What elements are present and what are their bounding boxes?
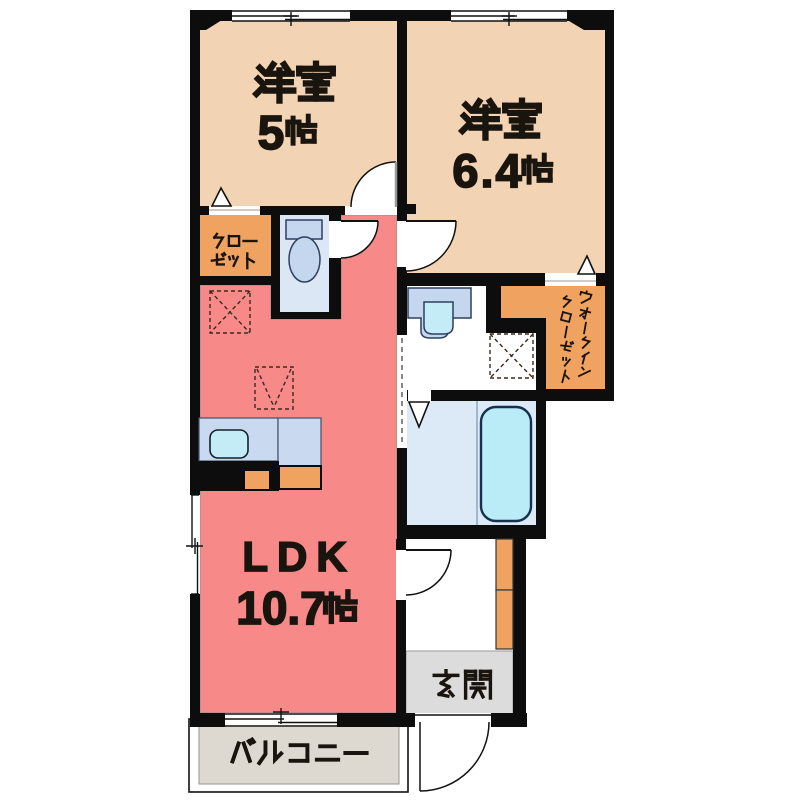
svg-text:LDK: LDK [242,533,355,580]
svg-text:6.4: 6.4 [452,144,523,197]
svg-text:10.7: 10.7 [236,582,326,634]
svg-text:5: 5 [258,107,285,160]
